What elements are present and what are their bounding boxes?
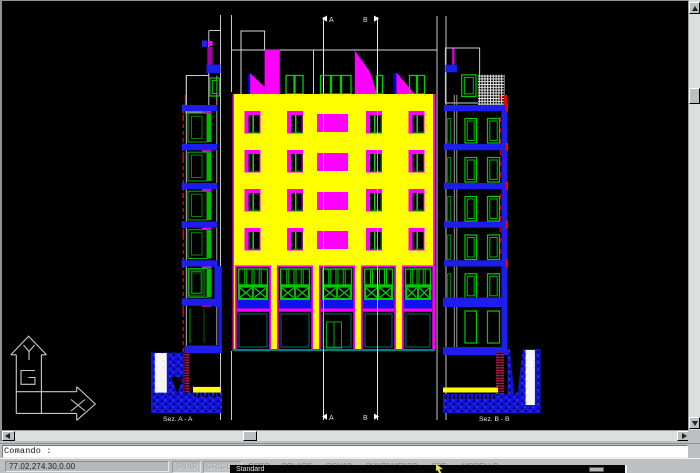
svg-text:Sez. B - B: Sez. B - B	[479, 416, 510, 423]
svg-text:B: B	[363, 415, 368, 422]
svg-text:B: B	[363, 17, 368, 24]
svg-text:A: A	[329, 415, 334, 422]
svg-text:Sez. A - A: Sez. A - A	[163, 416, 193, 423]
svg-text:A: A	[329, 17, 334, 24]
